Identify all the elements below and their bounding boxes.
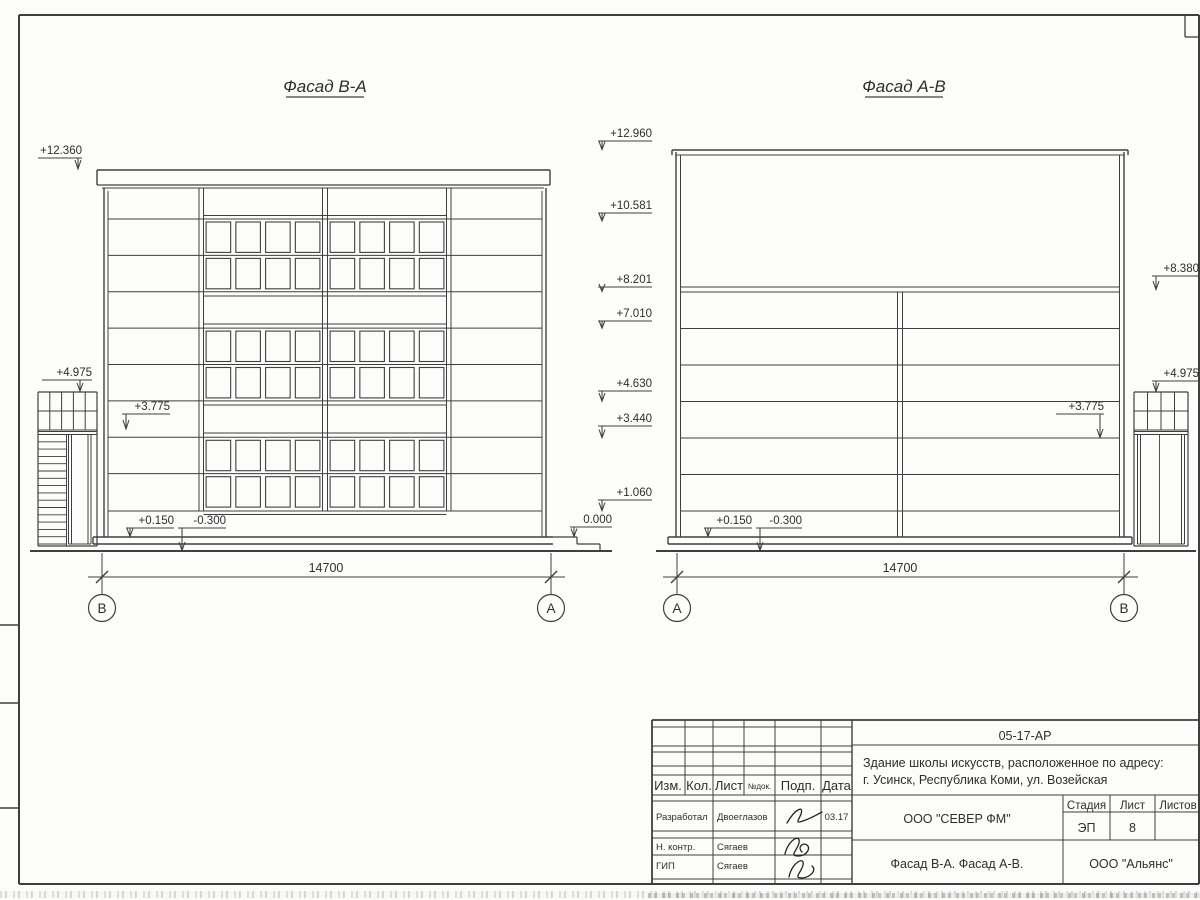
tb-doc-number: 05-17-АР <box>999 729 1052 743</box>
facade-right-title: Фасад А-В <box>862 77 945 96</box>
facade-left-linework <box>30 170 612 551</box>
elevation-label: +0.150 <box>717 515 753 527</box>
tb-role-name: Сягаев <box>717 861 748 872</box>
elevation-label: +4.975 <box>57 367 93 379</box>
tb-sheet-number: 8 <box>1129 821 1136 835</box>
facade-left-title: Фасад В-А <box>283 77 366 96</box>
elevation-leader <box>598 391 652 401</box>
elevation-label: 0.000 <box>583 514 612 526</box>
axis-markers <box>89 595 1138 622</box>
elevation-label: +4.975 <box>1164 368 1200 380</box>
tb-org2: ООО "Альянс" <box>1089 857 1173 871</box>
signatures <box>785 809 822 878</box>
signature-scribble <box>789 861 814 878</box>
elevation-leader <box>1152 381 1199 392</box>
elevation-label: +3.775 <box>1069 401 1105 413</box>
elevation-label: +12.960 <box>610 128 652 140</box>
elevation-label: +3.440 <box>617 413 653 425</box>
signature-scribble <box>787 809 822 823</box>
elevation-leader <box>38 158 82 169</box>
tb-role-date: 03.17 <box>825 812 849 823</box>
elevation-label: +8.380 <box>1164 263 1200 275</box>
elevation-label: -0.300 <box>193 515 226 527</box>
elevation-leader <box>598 426 652 438</box>
tb-col-podp: Подп. <box>781 778 816 793</box>
tb-stage-value: ЭП <box>1078 821 1096 835</box>
elevation-leader <box>126 528 174 537</box>
axis-label: А <box>672 601 681 616</box>
tb-object-line2: г. Усинск, Республика Коми, ул. Возейска… <box>863 773 1107 787</box>
tb-object-line1: Здание школы искусств, расположенное по … <box>863 756 1164 770</box>
axis-label: А <box>546 601 555 616</box>
elevation-leader <box>756 528 802 551</box>
elevation-label: +10.581 <box>610 200 652 212</box>
elevation-label: +3.775 <box>135 401 171 413</box>
elevation-label: -0.300 <box>769 515 802 527</box>
tb-col-list: Лист <box>715 778 743 793</box>
elevation-leader <box>598 141 652 150</box>
tb-role-name: Двоеглазов <box>717 812 768 823</box>
dimension-lines <box>88 553 1138 595</box>
tb-sheet-label: Лист <box>1120 800 1146 812</box>
tb-sheets-label: Листов <box>1159 800 1196 812</box>
tb-role: Разработал <box>656 812 708 823</box>
elevation-label: +8.201 <box>617 274 653 286</box>
elevation-leader <box>1152 276 1199 290</box>
tb-col-ndok: №док. <box>748 782 771 791</box>
tb-col-data: Дата <box>822 778 852 793</box>
signature-scribble <box>785 838 809 856</box>
elevation-leader <box>598 213 652 221</box>
axis-label: В <box>97 601 106 616</box>
dimension-value: 14700 <box>883 561 918 575</box>
elevation-label: +12.360 <box>40 145 82 157</box>
elevation-label: +0.150 <box>139 515 175 527</box>
elevation-leader <box>598 500 652 511</box>
tb-col-izm: Изм. <box>654 778 682 793</box>
tb-col-kol: Кол. <box>686 778 712 793</box>
tb-role: ГИП <box>656 861 675 872</box>
drawing-sheet: Фасад В-А Фасад А-В +12.360 +4.975 +3.77… <box>0 0 1200 900</box>
tb-sheet-title: Фасад В-А. Фасад А-В. <box>891 857 1024 871</box>
tb-org1: ООО "СЕВЕР ФМ" <box>903 812 1010 826</box>
elevation-leader <box>122 414 170 429</box>
tb-role: Н. контр. <box>656 842 695 853</box>
axis-label: В <box>1119 601 1128 616</box>
elevation-leader <box>1056 414 1104 438</box>
elevation-leader <box>178 528 226 551</box>
elevation-label: +7.010 <box>617 308 653 320</box>
scan-noise-strip-dark <box>648 893 1200 898</box>
tb-role-name: Сягаев <box>717 842 748 853</box>
tb-stage-label: Стадия <box>1067 800 1106 812</box>
drawing-canvas: Фасад В-А Фасад А-В +12.360 +4.975 +3.77… <box>0 0 1200 900</box>
elevation-label: +4.630 <box>617 378 653 390</box>
elevation-label: +1.060 <box>617 487 653 499</box>
dimension-value: 14700 <box>309 561 344 575</box>
facade-right-linework <box>656 150 1196 551</box>
elevation-leader <box>570 527 612 537</box>
elevation-leader <box>598 321 652 329</box>
elevation-leader <box>704 528 752 537</box>
elevation-leader <box>42 380 92 391</box>
